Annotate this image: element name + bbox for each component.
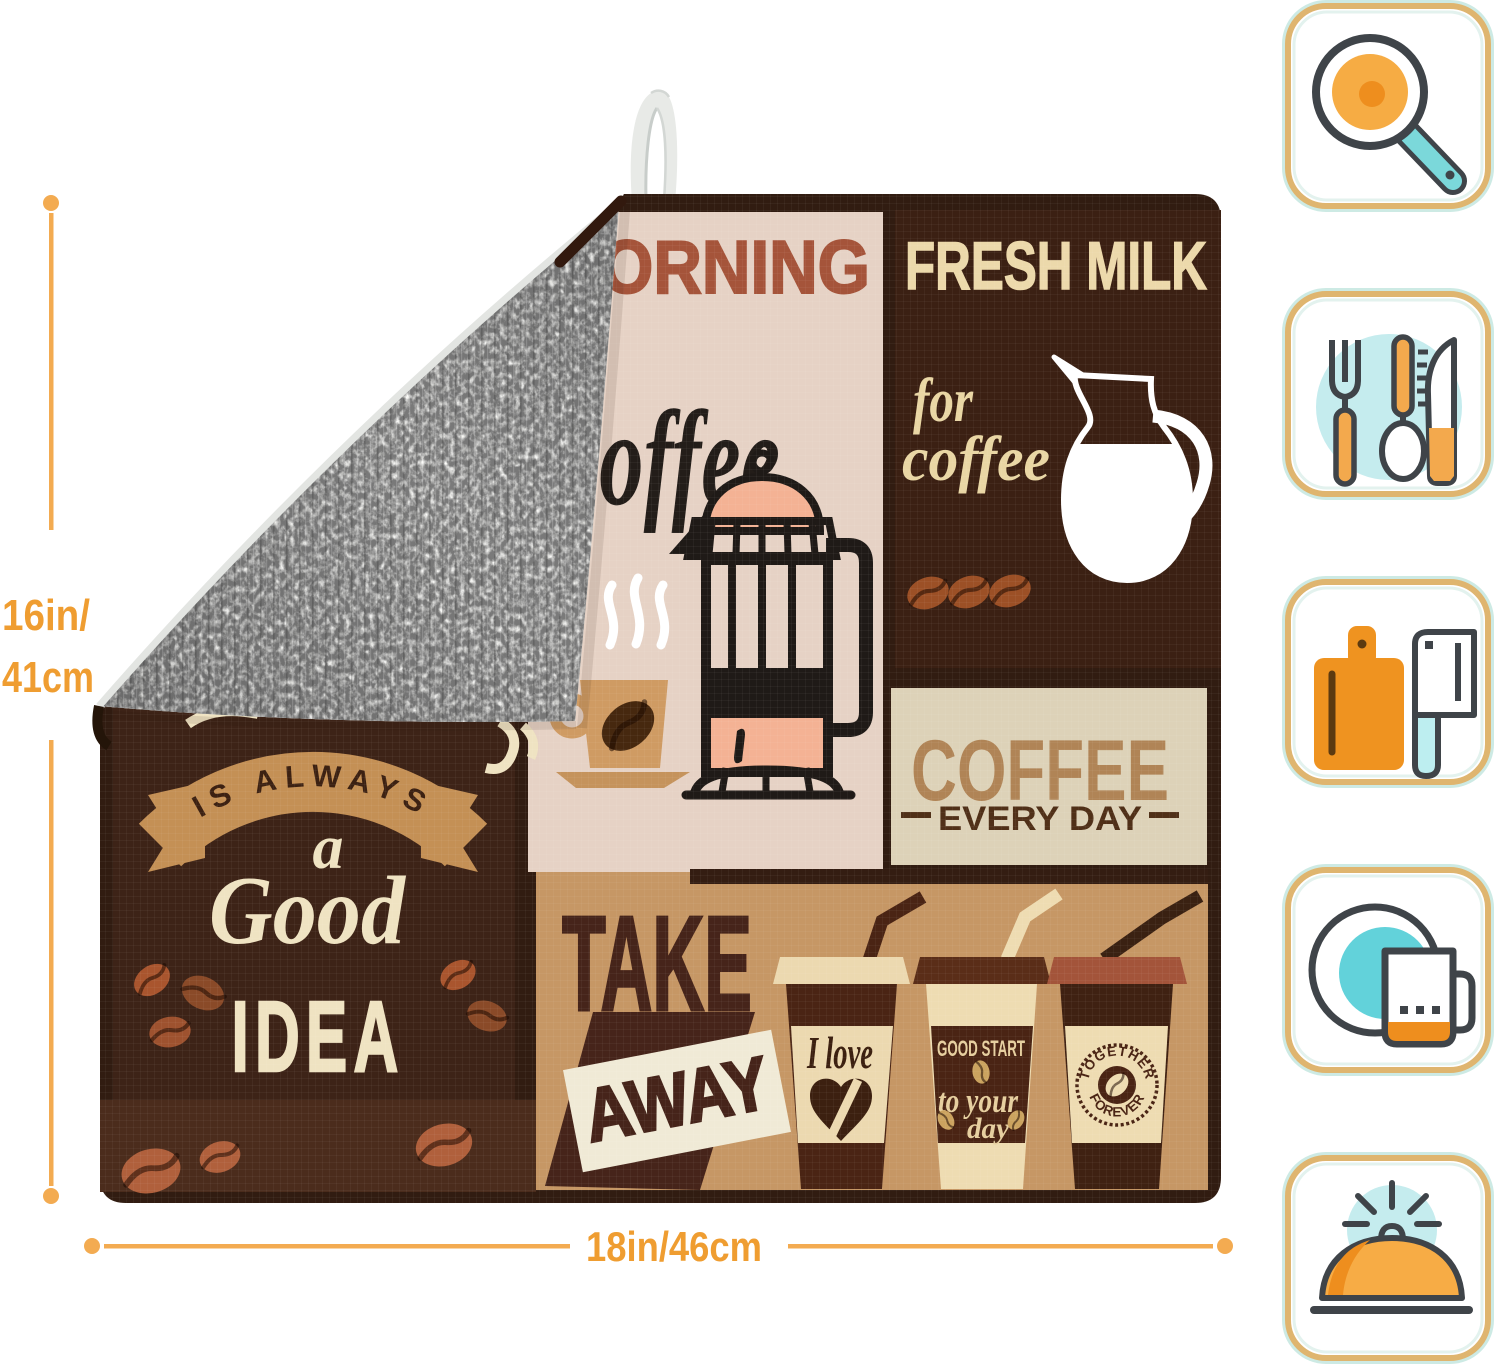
svg-text:18in/46cm: 18in/46cm [586, 1223, 762, 1270]
svg-text:41cm: 41cm [2, 653, 94, 702]
svg-text:16in/: 16in/ [2, 591, 90, 640]
